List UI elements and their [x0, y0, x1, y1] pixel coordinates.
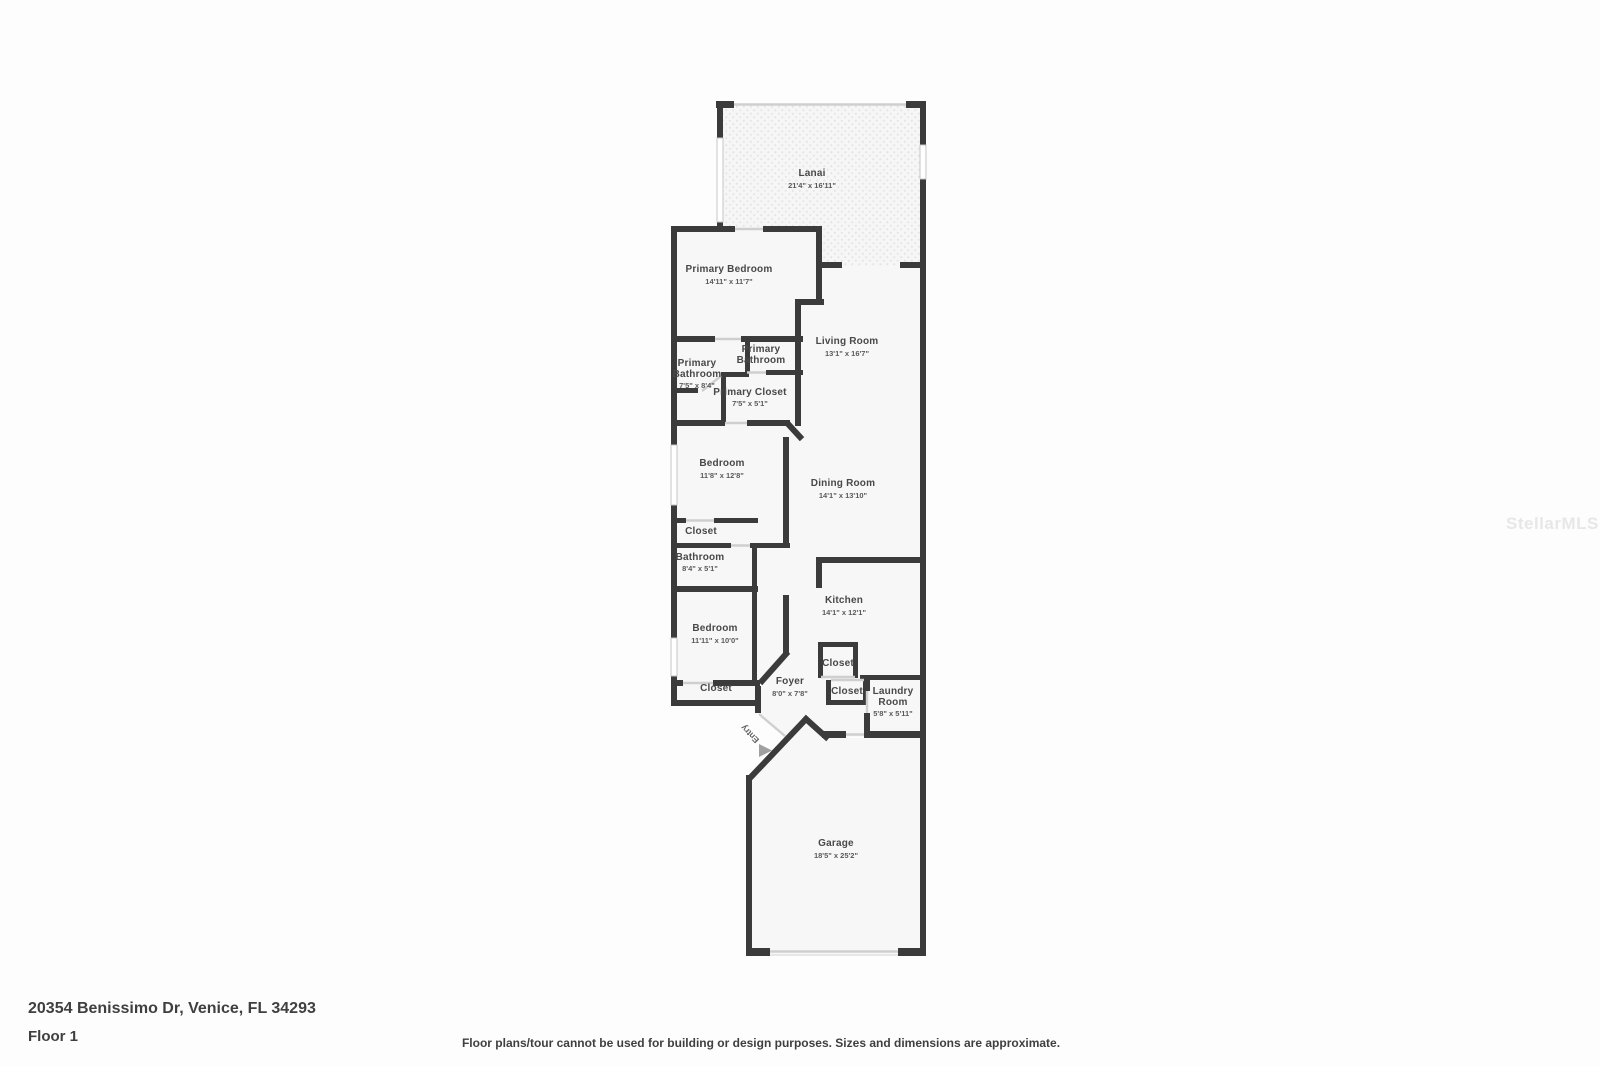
room-label-primary-bathroom-1: Primary [678, 358, 717, 369]
room-label-primary-bathroom-small-1: Primary [742, 344, 781, 355]
room-dims-bedroom-upper: 11'8" x 12'8" [700, 471, 744, 480]
room-dims-living-room: 13'1" x 16'7" [825, 349, 869, 358]
watermark: StellarMLS [1506, 514, 1600, 534]
room-dims-bedroom-lower: 11'11" x 10'0" [691, 636, 739, 645]
room-label-closet-bedroom: Closet [700, 683, 732, 694]
disclaimer-text: Floor plans/tour cannot be used for buil… [0, 1036, 1522, 1050]
room-label-bathroom: Bathroom [676, 552, 725, 563]
room-label-primary-bedroom: Primary Bedroom [686, 264, 773, 275]
room-dims-bathroom: 8'4" x 5'1" [682, 564, 718, 573]
room-label-kitchen: Kitchen [825, 595, 863, 606]
room-dims-primary-bedroom: 14'11" x 11'7" [705, 277, 753, 286]
room-label-primary-bathroom-2: Bathroom [673, 369, 722, 380]
room-dims-dining-room: 14'1" x 13'10" [819, 491, 868, 500]
room-label-closet-kitchen: Closet [822, 658, 854, 669]
floor-plan-svg: Lanai 21'4" x 16'11" Primary Bedroom 14'… [0, 0, 1600, 1066]
room-label-lanai: Lanai [798, 168, 825, 179]
room-label-primary-closet: Primary Closet [713, 387, 787, 398]
floor-plan-page: Lanai 21'4" x 16'11" Primary Bedroom 14'… [0, 0, 1600, 1066]
address-text: 20354 Benissimo Dr, Venice, FL 34293 [28, 1000, 316, 1018]
room-label-living-room: Living Room [816, 336, 879, 347]
room-label-bedroom-upper: Bedroom [699, 458, 744, 469]
room-label-closet-foyer: Closet [831, 686, 863, 697]
room-dims-garage: 18'5" x 25'2" [814, 851, 858, 860]
room-label-laundry-1: Laundry [873, 686, 914, 697]
entry-label: Entry [738, 723, 761, 746]
room-dims-lanai: 21'4" x 16'11" [788, 181, 836, 190]
room-label-primary-bathroom-small-2: Bathroom [737, 355, 786, 366]
room-label-bedroom-lower: Bedroom [692, 623, 737, 634]
room-dims-primary-bathroom: 7'5" x 8'4" [679, 381, 715, 390]
room-label-dining-room: Dining Room [811, 478, 875, 489]
room-dims-primary-closet: 7'5" x 5'1" [732, 399, 768, 408]
room-label-garage: Garage [818, 838, 854, 849]
room-label-laundry-2: Room [878, 697, 907, 708]
room-label-closet-upper: Closet [685, 526, 717, 537]
room-dims-laundry: 5'8" x 5'11" [873, 709, 913, 718]
room-dims-foyer: 8'0" x 7'8" [772, 689, 808, 698]
room-dims-kitchen: 14'1" x 12'1" [822, 608, 866, 617]
room-label-foyer: Foyer [776, 676, 804, 687]
